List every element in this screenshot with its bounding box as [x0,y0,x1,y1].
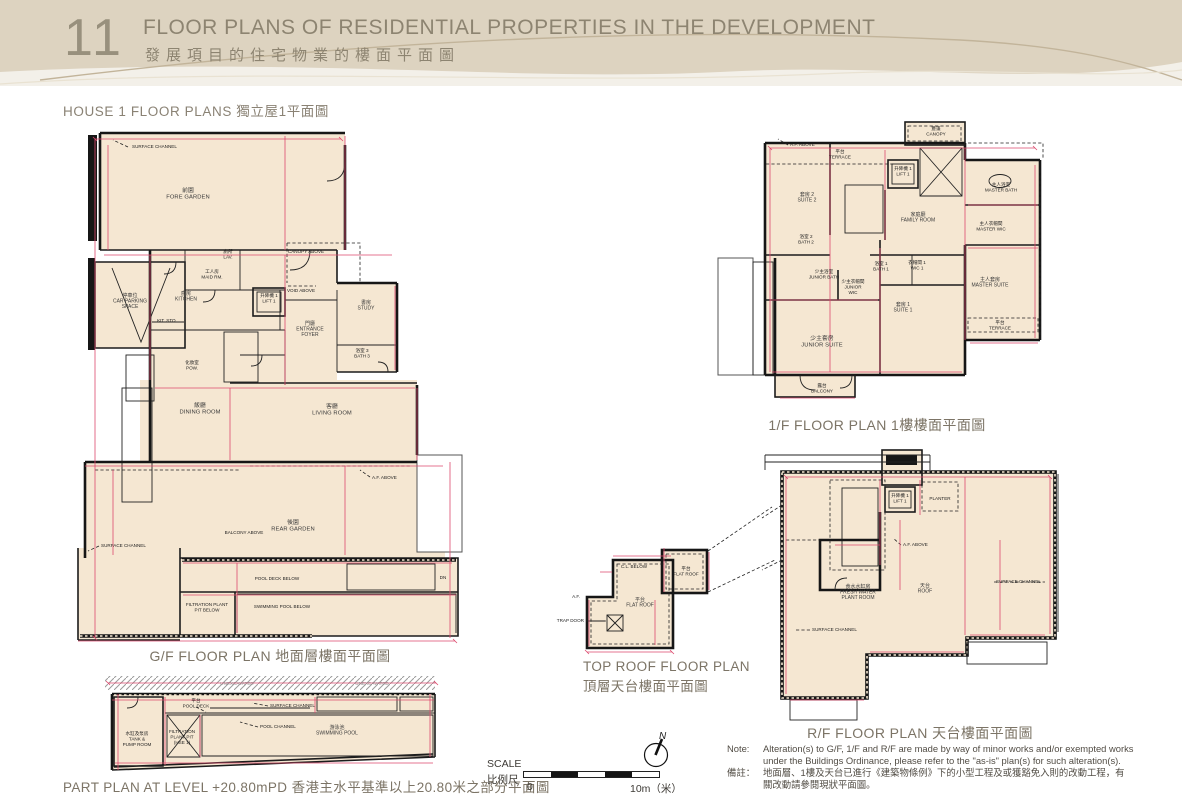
plan-label: 套房 2SUITE 2 [798,191,817,203]
plan-label: 浴室 2BATH 2 [798,233,814,244]
note-zh-line2: 關改動請參閱現狀平面圖。 [763,779,1182,791]
f1-caption: 1/F FLOOR PLAN 1樓樓面平面圖 [727,415,1027,435]
plan-label: 主人衣帽間MASTER WIC [976,220,1006,231]
page-title-en: FLOOR PLANS OF RESIDENTIAL PROPERTIES IN… [143,16,875,40]
plan-label: KIT. STO. [157,318,177,323]
plan-label: SURFACE CHANNEL [132,144,177,149]
rf-caption: R/F FLOOR PLAN 天台樓面平面圖 [770,723,1070,743]
scale-label-zh: 比例尺 [487,772,519,787]
plan-label: UNEXCAVATED [355,681,389,686]
plan-label: POOL DECK BELOW [255,576,300,581]
plan-label: 浴室 1BATH 1 [873,260,889,271]
plan-label: 升降機 1LIFT 1 [260,292,278,303]
plan-label: 套房 1SUITE 1 [894,301,913,313]
plan-label: 升降機 1LIFT 1 [891,492,909,503]
plan-label: SURFACE CHANNEL [812,627,857,632]
note-label-en: Note: [727,743,763,755]
plan-label: DN [440,575,447,580]
part-plan-caption: PART PLAN AT LEVEL +20.80mPD 香港主水平基準以上20… [63,776,550,796]
note-en-line1: Alteration(s) to G/F, 1/F and R/F are ma… [763,743,1182,755]
plan-label: 浴室 3BATH 3 [354,347,370,358]
scale-label-en: SCALE [487,758,521,770]
gf-caption: G/F FLOOR PLAN 地面層樓面平面圖 [115,646,425,666]
plan-label: SURFACE CHANNEL [101,543,146,548]
plan-label: A.F. ABOVE [790,142,815,147]
plan-label: 廁所LAV. [223,248,233,259]
toproof-plan-drawing: 平台FLAT ROOF平台FLAT ROOFTRAP DOORC.L. BELO… [548,450,763,655]
header-wave-decoration [0,0,1182,86]
plan-label: TRAP DOOR [557,618,585,623]
scale-end: 10m（米） [630,781,682,796]
plan-label: SURFACE CHANNEL [270,703,315,708]
plan-label: SWIMMING POOL BELOW [254,604,311,609]
north-arrow: N [640,728,680,776]
plan-label: A.F. [572,594,580,599]
toproof-caption-zh: 頂層天台樓面平面圖 [583,675,708,695]
plan-label: 化妝室POW. [185,359,199,370]
plan-label: 升降機 1LIFT 1 [894,165,912,176]
plan-label: VOID ABOVE [287,288,315,293]
plan-label: A.F. ABOVE [372,475,397,480]
plan-label: POOL CHANNEL [260,724,296,729]
part-plan-drawing: UNEXCAVATEDUNEXCAVATED平台POOL DECKSURFACE… [55,670,470,778]
scale-start: 0 [527,781,533,793]
page-title-zh: 發展項目的住宅物業的樓面平面圖 [145,44,460,65]
note-label-zh: 備註： [727,767,763,779]
note-block: Note: Alteration(s) to G/F, 1/F and R/F … [727,743,1182,791]
note-zh-line1: 地面層、1樓及天台已進行《建築物條例》下的小型工程及或獲豁免入則的改動工程，有 [763,767,1182,779]
plan-label: UNEXCAVATED [220,681,254,686]
f1-floor-plan-drawing: 平台TERRACE簷篷CANOPY升降機 1LIFT 1套房 2SUITE 2家… [700,110,1055,440]
plan-label: C.L. BELOW [621,564,648,569]
plan-label: PLANTER [929,496,951,501]
plan-label: SURFACE CHANNEL [996,579,1041,584]
plan-label: A.F. ABOVE [903,542,928,547]
section-heading: HOUSE 1 FLOOR PLANS 獨立屋1平面圖 [63,100,329,120]
plan-label: BALCONY ABOVE [225,530,264,535]
note-en-line2: under the Buildings Ordinance, please re… [763,755,1182,767]
plan-label: CANOPY ABOVE [288,249,324,254]
page-number: 11 [64,8,124,68]
toproof-caption-en: TOP ROOF FLOOR PLAN [583,659,750,674]
gf-floor-plan-drawing: 前園FORE GARDEN停車位CAR PARKINGSPACE廚房KITCHE… [70,126,470,666]
brochure-page: { "header": { "number": "11", "title_en"… [0,0,1182,797]
header-band: 11 FLOOR PLANS OF RESIDENTIAL PROPERTIES… [0,0,1182,86]
rf-floor-plan-drawing: 升降機 1LIFT 1PLANTER食水水缸房FRESH WATERPLANT … [752,443,1072,728]
